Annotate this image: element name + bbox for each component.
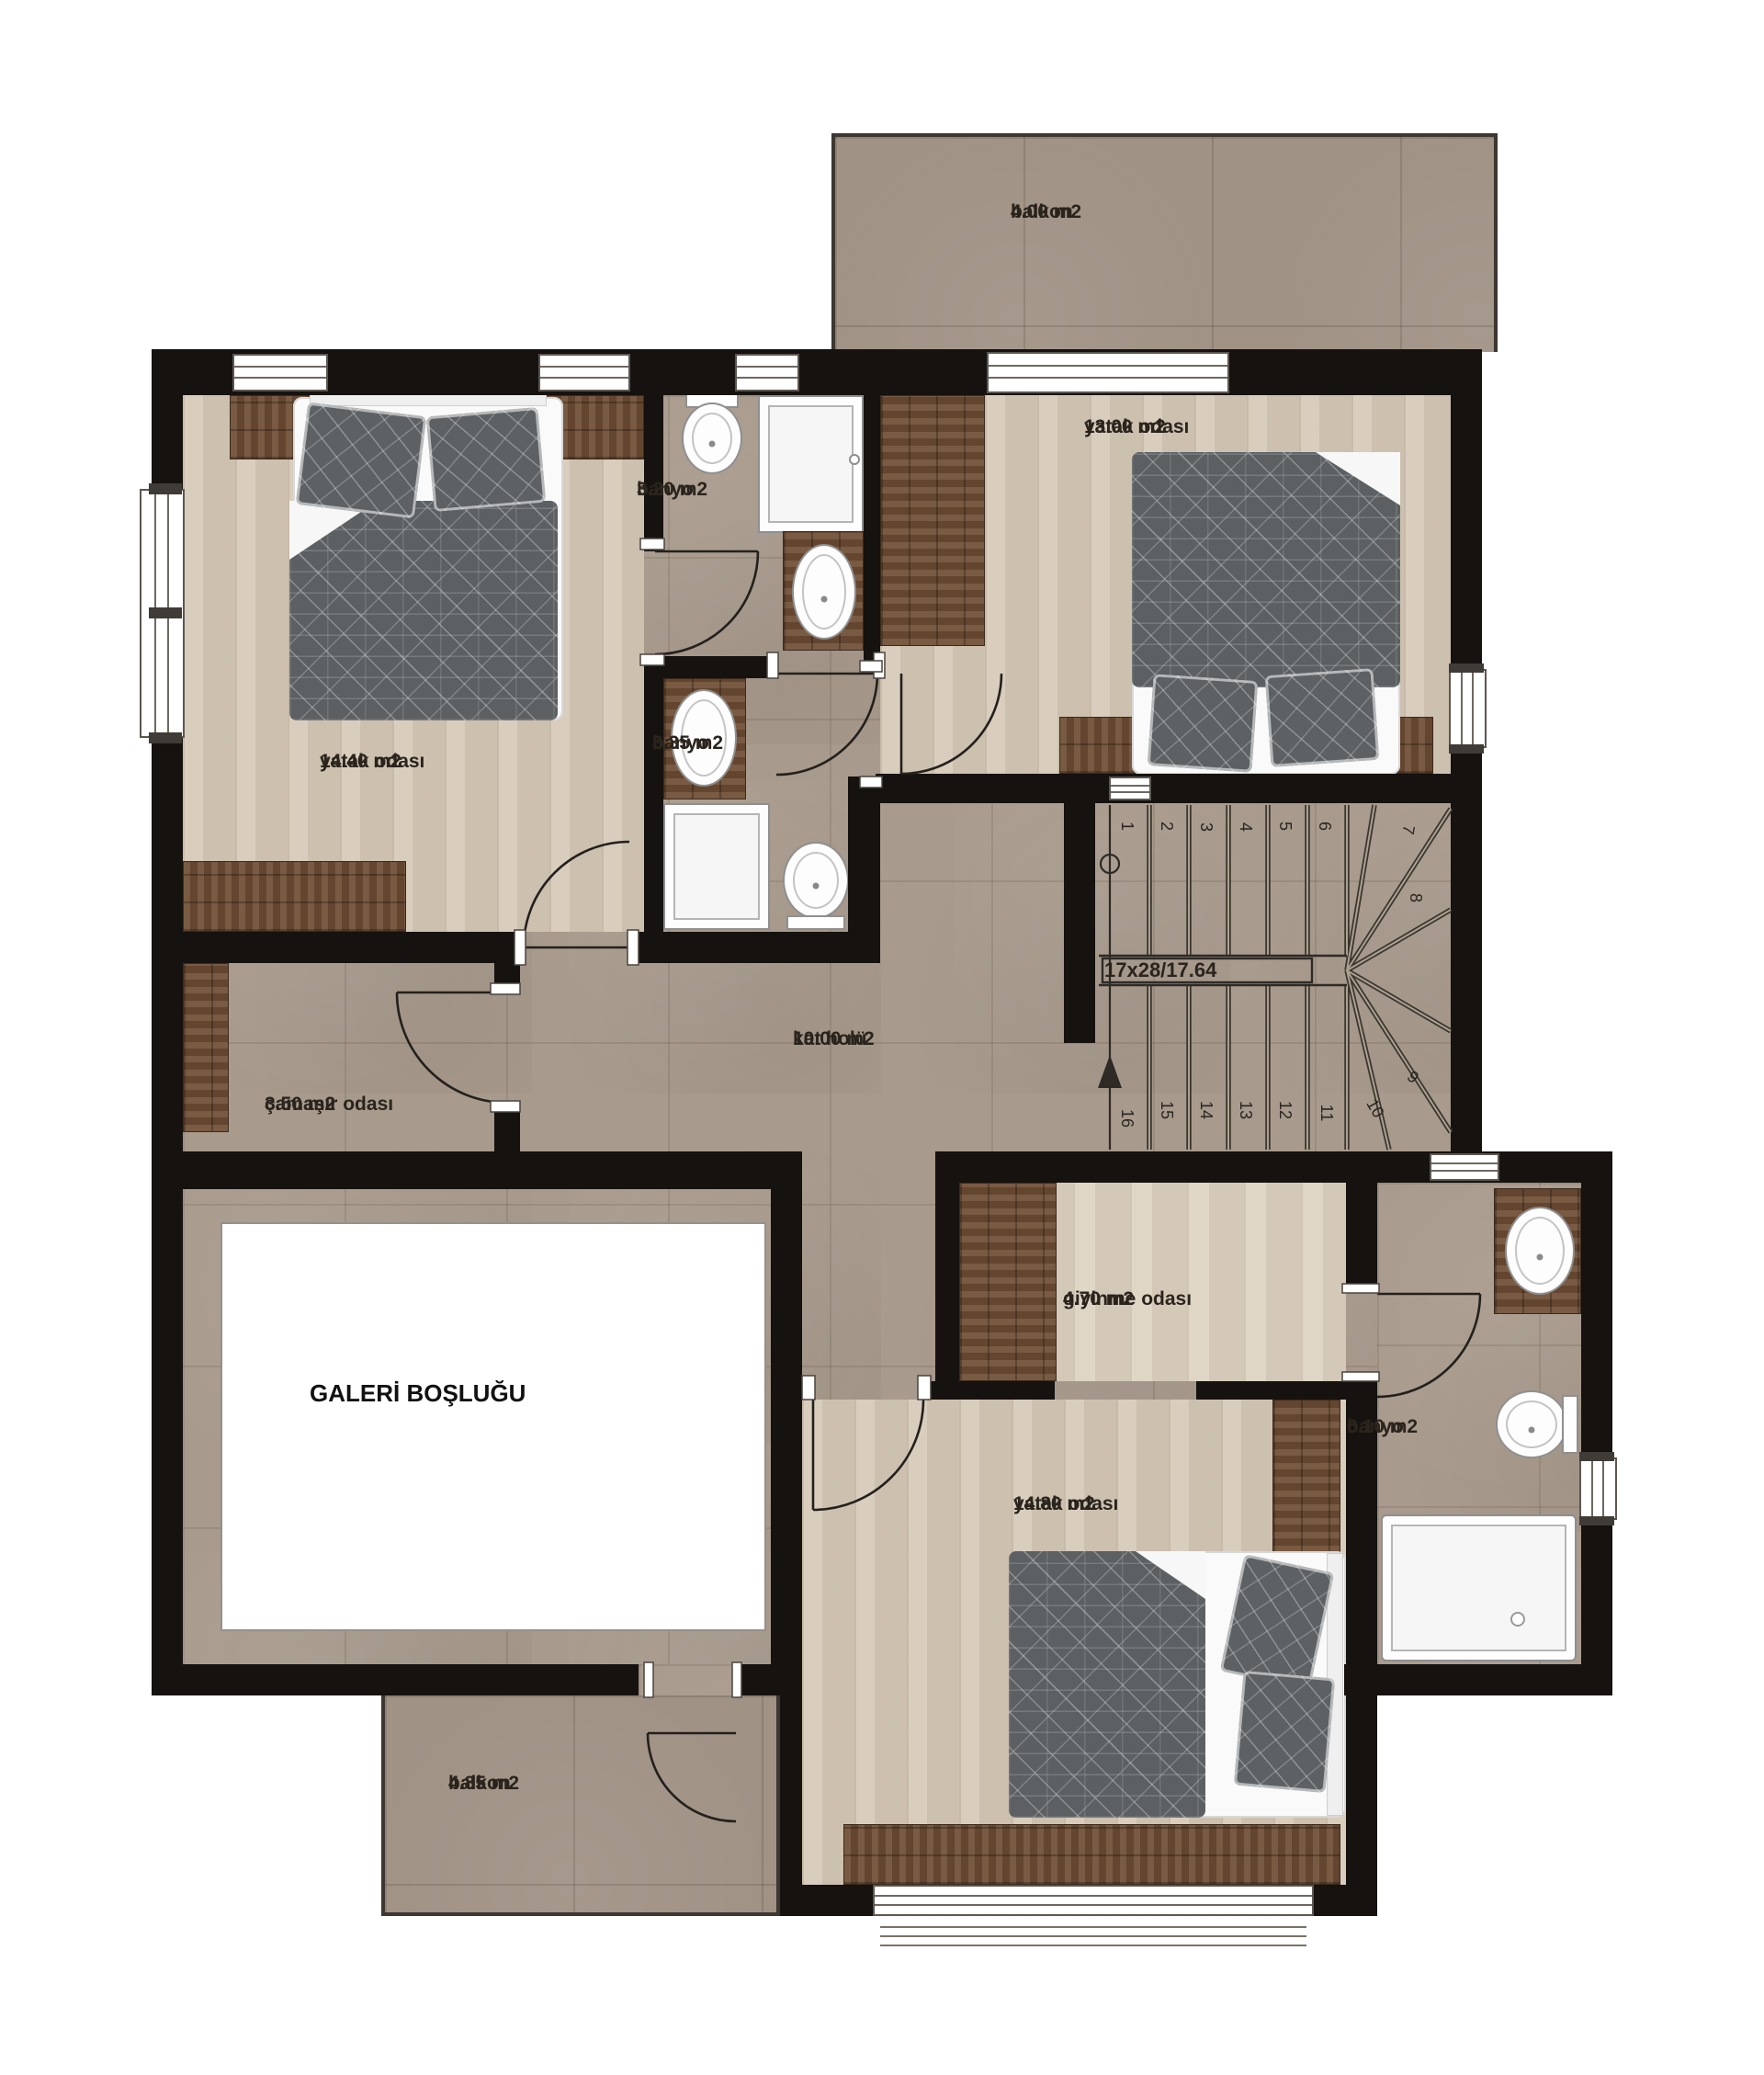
- floor-plan: balkon 4.00 m2 yatak odası 13.00 m2 bany…: [0, 0, 1764, 2075]
- window: [735, 354, 799, 391]
- stair-step-number: 11: [1311, 1097, 1342, 1128]
- window: [1109, 777, 1151, 800]
- room-name: GALERİ BOŞLUĞU: [310, 1381, 526, 1406]
- toilet-tank: [1562, 1395, 1578, 1454]
- bed-topright-pillow: [1265, 668, 1380, 767]
- toilet-icon: [682, 403, 742, 474]
- room-area: 6.10 m2: [1347, 1414, 1418, 1439]
- wall: [1581, 1151, 1612, 1457]
- room-area: 4.85 m2: [448, 1771, 519, 1796]
- wall: [848, 777, 880, 963]
- window: [232, 354, 328, 391]
- room-area: 4.70 m2: [1063, 1287, 1134, 1311]
- room-area: 3.35 m2: [652, 731, 723, 755]
- stair-step-number: 2: [1151, 811, 1182, 842]
- stair-step-number: 7: [1390, 811, 1426, 847]
- stair-step-number: 6: [1309, 811, 1340, 842]
- room-area: 13.00 m2: [1084, 414, 1166, 439]
- wall: [152, 1664, 639, 1695]
- gallery-void: [220, 1222, 766, 1631]
- wall: [864, 395, 880, 668]
- wall: [183, 932, 524, 963]
- balcony-top-floor: [831, 133, 1498, 352]
- window: [538, 354, 630, 391]
- toilet-icon: [783, 842, 849, 919]
- room-area: 10.00 m2: [793, 1026, 875, 1051]
- window-terrace-door: [873, 1885, 1314, 1916]
- sink-icon: [1505, 1207, 1575, 1295]
- bed-left-pillow: [296, 402, 427, 518]
- wall: [1196, 1381, 1346, 1400]
- wardrobe-dressing: [959, 1183, 1057, 1381]
- wall: [931, 1381, 1055, 1400]
- shower-tray-icon: [663, 803, 770, 930]
- wall: [1346, 1664, 1377, 1916]
- wall: [494, 963, 520, 992]
- window: [1430, 1153, 1499, 1181]
- room-area: 3.20 m2: [637, 477, 707, 502]
- wall: [1346, 1183, 1377, 1291]
- window: [140, 489, 185, 738]
- shower-tray-icon: [1381, 1514, 1577, 1661]
- dresser-bedroom-left: [183, 861, 406, 932]
- wall: [1451, 748, 1482, 1183]
- wall: [771, 1189, 802, 1664]
- bed-topright-duvet-fold: [1316, 452, 1400, 505]
- stair-step-number: 16: [1112, 1103, 1143, 1134]
- wall: [494, 1103, 520, 1151]
- stair-step-number: 5: [1270, 811, 1301, 842]
- toilet-tank: [786, 915, 845, 930]
- wall: [644, 395, 663, 551]
- toilet-icon: [1496, 1390, 1567, 1458]
- window-balcony-door: [987, 352, 1229, 393]
- wall: [1344, 1664, 1612, 1695]
- bed-left-pillow: [426, 407, 547, 512]
- wall: [1064, 803, 1095, 1043]
- window: [1579, 1457, 1617, 1520]
- room-area: 4.00 m2: [1011, 199, 1081, 224]
- sink-icon: [792, 544, 856, 640]
- stair-step-number: 13: [1230, 1094, 1261, 1126]
- sideboard-bedroom-bottom: [843, 1824, 1340, 1885]
- bed-bottom-pillow: [1234, 1671, 1336, 1793]
- bed-bottom-duvet-fold: [1136, 1551, 1205, 1599]
- stair-step-number: 12: [1270, 1094, 1301, 1126]
- wall: [1451, 349, 1482, 669]
- stair-step-number: 1: [1112, 811, 1143, 842]
- wall: [663, 656, 776, 678]
- wall: [935, 1151, 959, 1381]
- room-area: 3.50 m2: [265, 1092, 335, 1117]
- room-area: 14.40 m2: [320, 749, 401, 774]
- bed-left-headboard: [310, 393, 547, 406]
- window: [1449, 669, 1487, 748]
- shower-tray-icon: [758, 395, 864, 533]
- wall: [876, 774, 1482, 803]
- wall: [644, 654, 663, 963]
- stair-step-number: 3: [1191, 811, 1222, 843]
- room-area: 14.80 m2: [1013, 1491, 1095, 1516]
- deck-steps: [880, 1927, 1306, 1945]
- stair-step-number: 15: [1151, 1094, 1182, 1126]
- wardrobe-bedroom-bottom: [1272, 1400, 1340, 1553]
- wall: [152, 349, 1482, 395]
- cabinet-laundry: [183, 963, 229, 1132]
- stair-step-number: 8: [1400, 882, 1431, 913]
- balcony-door-threshold: [639, 1664, 740, 1695]
- stair-step-number: 4: [1230, 811, 1261, 843]
- wall: [152, 1151, 802, 1189]
- wall: [740, 1664, 802, 1695]
- stair-dimension-text: 17x28/17.64: [1104, 958, 1216, 982]
- wardrobe-bedroom-topright: [880, 395, 985, 646]
- stair-step-number: 14: [1191, 1094, 1222, 1126]
- balcony-bottom-floor: [381, 1695, 780, 1916]
- bed-topright-pillow: [1148, 674, 1259, 773]
- wall: [947, 1151, 1612, 1183]
